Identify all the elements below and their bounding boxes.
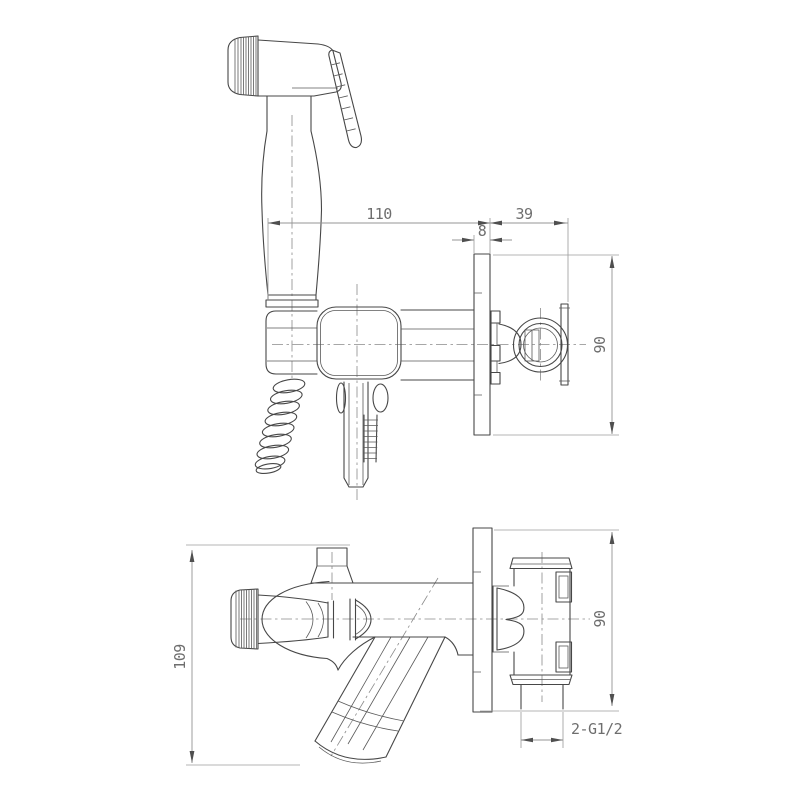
sprayer-holder-block	[266, 311, 317, 374]
valve-cap-block	[317, 307, 401, 379]
technical-drawing-canvas: 110 39 8 90	[0, 0, 800, 800]
mixer-lever-side	[337, 382, 389, 487]
holder-bell	[262, 582, 458, 671]
sprayer-handle	[262, 96, 322, 307]
g-half-port-lower	[556, 642, 572, 672]
mount-bracket	[491, 311, 521, 384]
wall-plate-top	[473, 528, 492, 712]
spout-axis-centerline	[331, 578, 438, 756]
dock-collar	[328, 599, 371, 640]
thread-size-label: 2-G1/2	[571, 720, 622, 738]
drawing-svg: 110 39 8 90	[0, 0, 800, 800]
dim-110-label: 110	[366, 205, 392, 223]
body-tube	[401, 310, 474, 380]
dim-39-label: 39	[515, 205, 533, 223]
g-half-port-upper	[556, 572, 572, 602]
sprayer-top	[231, 589, 371, 649]
side-view: 110 39 8 90	[228, 36, 619, 503]
trigger-lever	[329, 50, 362, 148]
in-wall-pipe	[510, 558, 572, 709]
spray-head-cap	[228, 36, 258, 96]
spray-head-body	[258, 36, 341, 96]
dim-109-label: 109	[171, 644, 189, 670]
hose-nipple	[363, 415, 378, 462]
dim-90-top-label: 90	[591, 610, 609, 628]
top-view: 109 90 2-G1/2	[171, 528, 622, 765]
hand-sprayer	[228, 36, 361, 307]
wall-bracket-top	[493, 586, 524, 652]
valve-body	[266, 307, 474, 380]
spiral-hose	[254, 377, 306, 475]
dim-8-label: 8	[478, 222, 487, 240]
spout-cone	[315, 637, 445, 763]
dim-90-side-label: 90	[591, 336, 609, 354]
